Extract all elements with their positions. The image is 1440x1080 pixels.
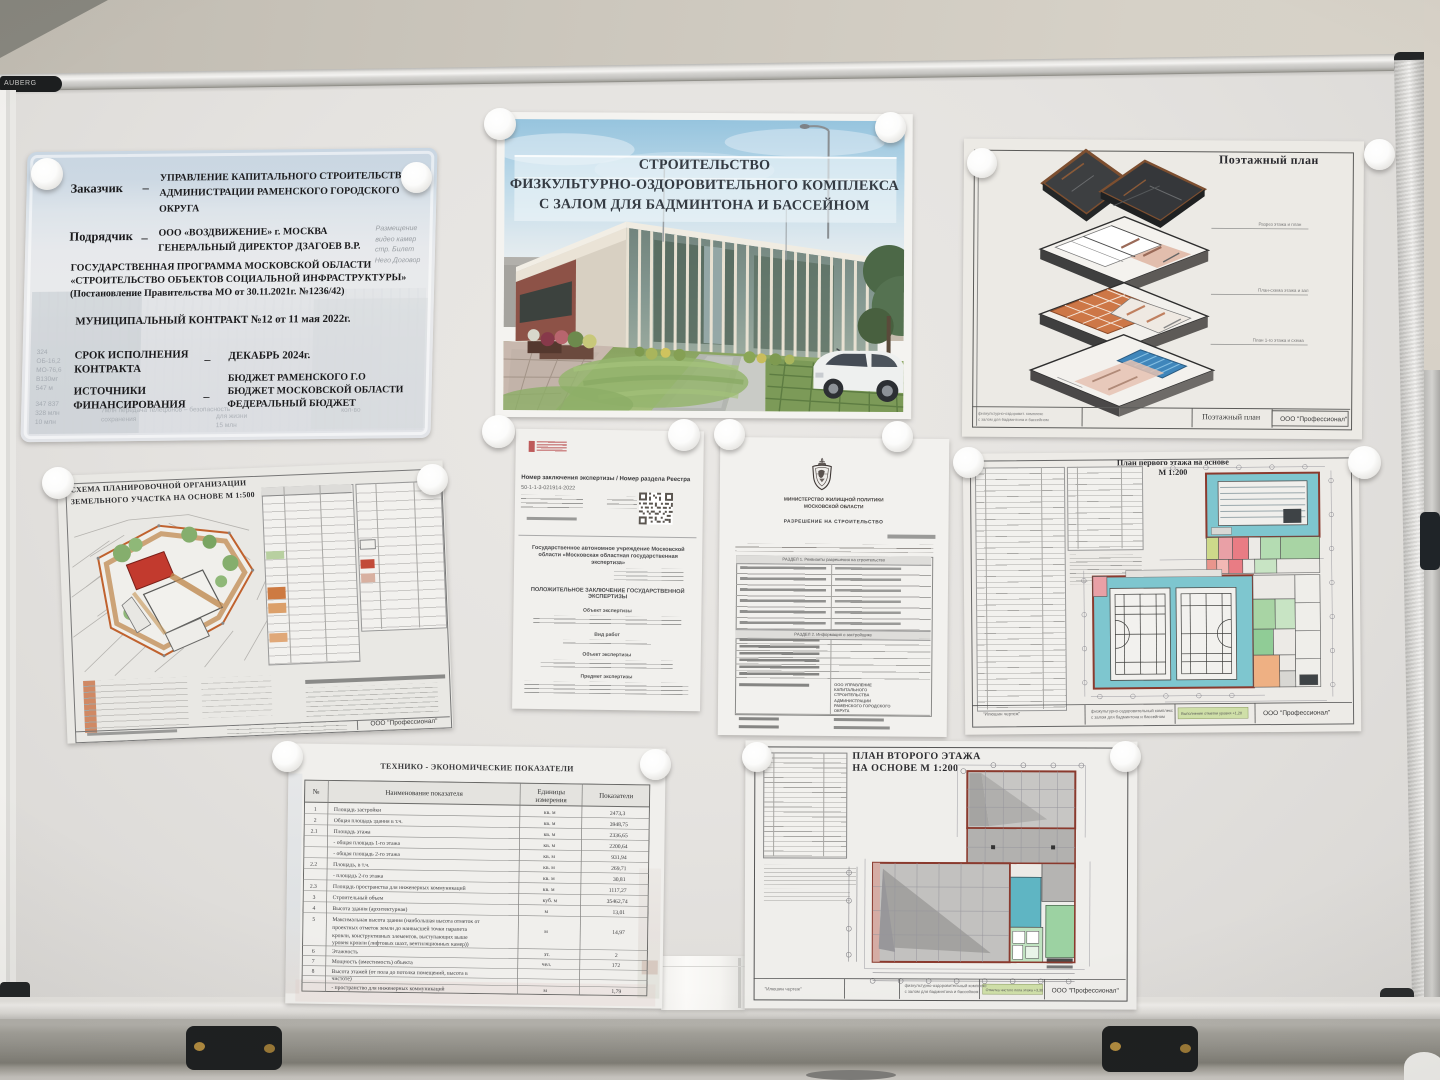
svg-text:Этажность: Этажность [332,949,358,955]
svg-text:м: м [544,929,548,935]
svg-text:Наименование показателя: Наименование показателя [385,789,463,798]
svg-text:чел.: чел. [542,962,552,968]
svg-text:2.3: 2.3 [310,884,317,890]
svg-text:ООО "Профессионал": ООО "Профессионал" [1052,987,1120,994]
svg-text:6: 6 [312,949,315,955]
svg-text:ООО "Профессионал": ООО "Профессионал" [1263,710,1331,718]
svg-text:Площадь застройки: Площадь застройки [334,806,381,814]
svg-text:2.1: 2.1 [311,829,318,835]
svg-text:- площадь 2-го этажа: - площадь 2-го этажа [333,873,384,880]
svg-text:с залом для бадминтона и бассе: с залом для бадминтона и бассейном [978,417,1049,422]
svg-text:физкультурно-оздоровительный к: физкультурно-оздоровительный комплекс [1091,708,1173,714]
svg-text:Высота этажей (от пола до пото: Высота этажей (от пола до потолка помеще… [332,968,468,977]
svg-text:13,01: 13,01 [612,910,625,916]
svg-text:2200,64: 2200,64 [609,844,627,850]
svg-text:3948,75: 3948,75 [610,822,628,828]
svg-text:физкультурно-оздоровительный к: физкультурно-оздоровительный комплекс [905,983,987,988]
svg-text:Отметка чистого пола этажа +3,: Отметка чистого пола этажа +3,30 [986,988,1043,992]
svg-text:с залом для бадминтона и бассе: с залом для бадминтона и бассейном [905,989,979,994]
svg-text:чистоте): чистоте) [332,975,352,982]
svg-text:кв. м: кв. м [543,865,555,871]
svg-text:кв. м: кв. м [544,810,556,816]
svg-text:с залом для бадминтона и бассе: с залом для бадминтона и бассейном [1091,714,1165,720]
svg-text:14,97: 14,97 [612,930,625,936]
svg-text:269,71: 269,71 [611,866,627,872]
svg-text:2.2: 2.2 [310,862,317,868]
svg-text:кв. м: кв. м [543,876,555,882]
svg-text:Поэтажный план: Поэтажный план [1202,412,1261,421]
svg-text:Общая площадь здания в т.ч.: Общая площадь здания в т.ч. [334,817,404,825]
svg-text:- общая площадь 2-го этажа: - общая площадь 2-го этажа [333,850,400,858]
svg-text:2: 2 [615,953,618,959]
svg-text:1117,27: 1117,27 [609,888,627,894]
svg-text:кв. м: кв. м [543,854,555,860]
svg-text:№: № [313,788,320,796]
svg-text:30,81: 30,81 [613,877,626,883]
svg-text:2473,3: 2473,3 [610,811,626,817]
svg-text:кв. м: кв. м [544,832,556,838]
svg-text:План 1-го этажа и схема: План 1-го этажа и схема [1253,338,1305,343]
svg-text:куб. м: куб. м [543,897,558,904]
svg-text:1: 1 [314,807,317,813]
svg-text:8: 8 [312,969,315,975]
svg-text:измерения: измерения [535,796,567,804]
svg-text:- общая площадь 1-го этажа: - общая площадь 1-го этажа [333,839,400,847]
svg-text:проектных отметок земли до наи: проектных отметок земли до наивысшей точ… [332,924,467,933]
svg-text:1,79: 1,79 [611,989,621,995]
svg-text:"Илюшин чертеж": "Илюшин чертеж" [983,711,1020,716]
svg-text:физкультурно-оздоровит. компле: физкультурно-оздоровит. комплекс [978,411,1043,416]
svg-text:5: 5 [312,917,315,923]
svg-text:План-схема этажа и зал: План-схема этажа и зал [1258,288,1309,293]
svg-text:4: 4 [312,906,315,912]
svg-text:Высота здания (архитектурная): Высота здания (архитектурная) [332,905,407,913]
svg-text:Разрез этажа и план: Разрез этажа и план [1258,222,1301,227]
svg-text:172: 172 [612,963,621,969]
svg-text:931,94: 931,94 [611,855,627,861]
svg-text:2: 2 [314,818,317,824]
svg-text:м: м [543,988,547,994]
svg-text:Мощность (вместимость) объекта: Мощность (вместимость) объекта [332,958,414,966]
svg-text:Максимальная высота здания (на: Максимальная высота здания (наибольшая в… [332,916,480,925]
svg-text:7: 7 [312,959,315,965]
svg-text:Площадь пространства для инжен: Площадь пространства для инженерных комм… [333,883,466,892]
svg-text:2336,65: 2336,65 [610,833,628,839]
svg-text:Показатели: Показатели [599,792,633,800]
svg-text:эт.: эт. [544,952,551,958]
svg-text:кв. м: кв. м [543,843,555,849]
svg-text:Выполнение отметки уровня +1,2: Выполнение отметки уровня +1,20 [1181,711,1242,716]
svg-text:ООО "Профессионал": ООО "Профессионал" [1280,416,1348,423]
svg-text:кв. м: кв. м [544,821,556,827]
svg-text:Площадь, в т.ч.: Площадь, в т.ч. [333,862,370,869]
svg-text:Строительный объем: Строительный объем [333,894,384,902]
svg-text:3: 3 [313,895,316,901]
svg-text:м: м [544,909,548,915]
svg-text:35462,74: 35462,74 [607,899,628,905]
svg-text:Площадь этажа: Площадь этажа [334,829,372,836]
svg-text:"Илюшин чертеж": "Илюшин чертеж" [765,986,802,991]
svg-text:кв. м: кв. м [543,887,555,893]
